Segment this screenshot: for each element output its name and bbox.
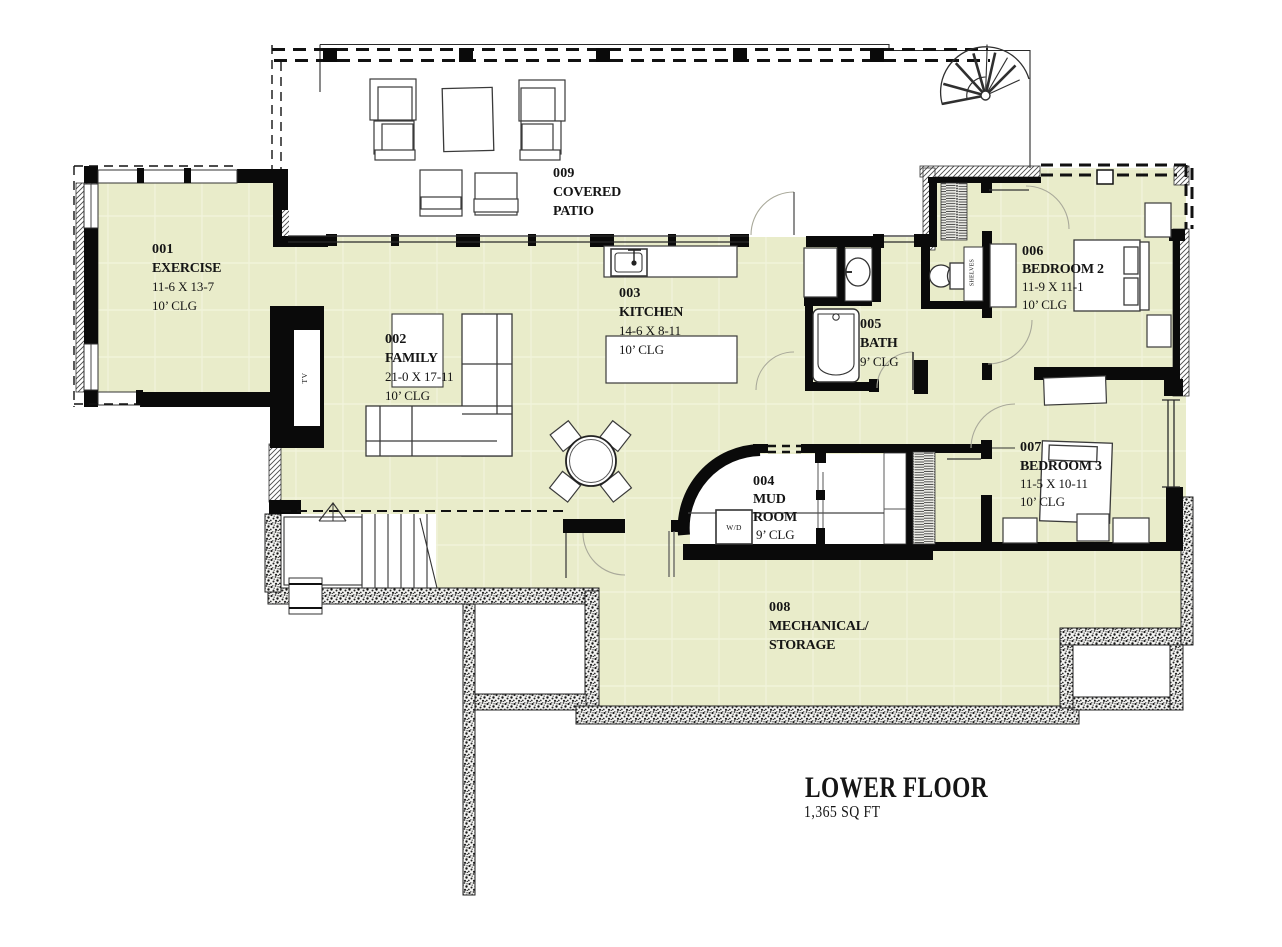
svg-text:10’ CLG: 10’ CLG — [619, 342, 664, 357]
svg-text:008: 008 — [769, 600, 791, 615]
svg-text:BEDROOM 2: BEDROOM 2 — [1022, 262, 1104, 277]
svg-text:KITCHEN: KITCHEN — [619, 305, 683, 320]
svg-text:009: 009 — [553, 166, 575, 181]
svg-text:10’ CLG: 10’ CLG — [1020, 494, 1065, 509]
svg-text:005: 005 — [860, 317, 882, 332]
svg-text:ROOM: ROOM — [753, 510, 797, 525]
svg-text:TV: TV — [300, 372, 309, 383]
svg-text:001: 001 — [152, 242, 174, 257]
svg-text:002: 002 — [385, 332, 407, 347]
svg-text:9’ CLG: 9’ CLG — [756, 527, 795, 542]
svg-text:004: 004 — [753, 474, 775, 489]
svg-text:MUD: MUD — [753, 492, 786, 507]
svg-text:9’ CLG: 9’ CLG — [860, 354, 899, 369]
svg-text:FAMILY: FAMILY — [385, 351, 438, 366]
svg-text:MECHANICAL/: MECHANICAL/ — [769, 619, 870, 634]
svg-text:10’ CLG: 10’ CLG — [385, 388, 430, 403]
svg-text:11-5 X 10-11: 11-5 X 10-11 — [1020, 476, 1088, 491]
svg-text:007: 007 — [1020, 440, 1042, 455]
svg-text:21-0 X 17-11: 21-0 X 17-11 — [385, 369, 453, 384]
svg-text:BATH: BATH — [860, 336, 898, 351]
svg-text:PATIO: PATIO — [553, 204, 594, 219]
svg-text:EXERCISE: EXERCISE — [152, 261, 221, 276]
svg-text:BEDROOM 3: BEDROOM 3 — [1020, 459, 1102, 474]
svg-text:W/D: W/D — [726, 523, 742, 532]
svg-text:10’ CLG: 10’ CLG — [1022, 297, 1067, 312]
svg-text:006: 006 — [1022, 244, 1044, 259]
svg-text:11-6 X 13-7: 11-6 X 13-7 — [152, 279, 215, 294]
svg-text:LOWER FLOOR: LOWER FLOOR — [805, 770, 988, 803]
svg-text:10’ CLG: 10’ CLG — [152, 298, 197, 313]
svg-text:003: 003 — [619, 286, 641, 301]
svg-text:COVERED: COVERED — [553, 185, 621, 200]
svg-text:STORAGE: STORAGE — [769, 638, 835, 653]
svg-text:1,365 SQ FT: 1,365 SQ FT — [804, 803, 881, 821]
svg-text:SHELVES: SHELVES — [970, 259, 976, 286]
svg-text:11-9 X 11-1: 11-9 X 11-1 — [1022, 279, 1083, 294]
svg-text:14-6 X 8-11: 14-6 X 8-11 — [619, 323, 681, 338]
